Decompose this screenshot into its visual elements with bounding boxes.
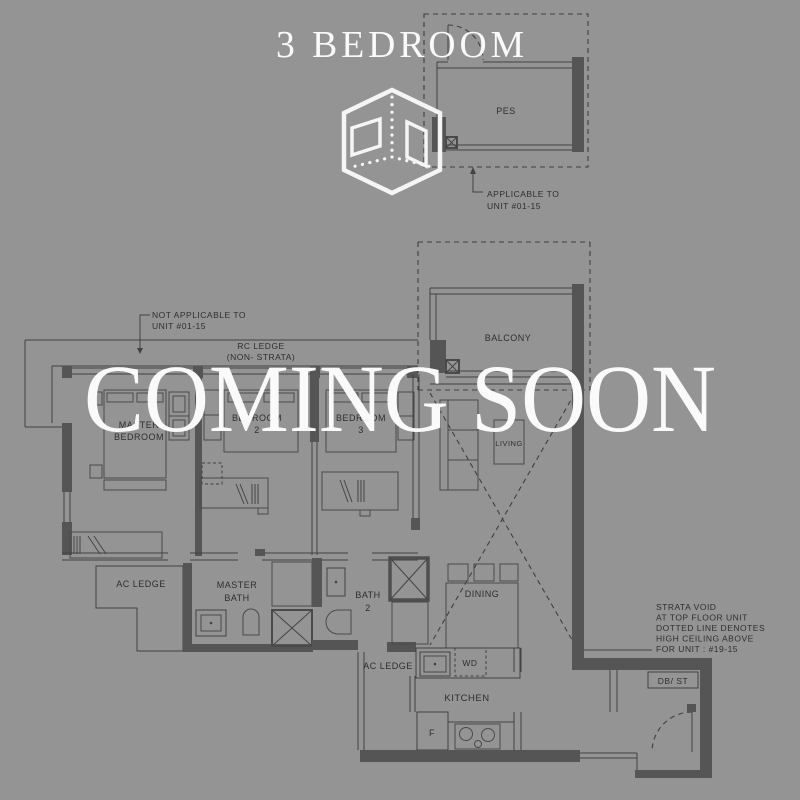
master-bath-label-line2: BATH	[224, 593, 249, 603]
strata-void-line5: FOR UNIT : #19-15	[656, 644, 738, 654]
bath-2: BATH 2	[312, 558, 428, 652]
pes-note-line2: UNIT #01-15	[487, 201, 541, 211]
balcony-label: BALCONY	[485, 333, 532, 343]
kitchen: AC LEDGE WD KITCHEN F	[358, 648, 580, 762]
floor-plan-canvas: PES APPLICABLE TO UNIT #01-15 RC LEDGE (…	[0, 0, 800, 800]
floorplan-page: PES APPLICABLE TO UNIT #01-15 RC LEDGE (…	[0, 0, 800, 800]
master-bath-label-line1: MASTER	[217, 580, 258, 590]
pes-right-wall	[572, 57, 584, 152]
strata-void-note: STRATA VOID AT TOP FLOOR UNIT DOTTED LIN…	[584, 602, 765, 654]
not-applicable-line2: UNIT #01-15	[152, 321, 206, 331]
strata-void-line4: HIGH CEILING ABOVE	[656, 634, 754, 644]
ac-ledge-left-label: AC LEDGE	[116, 579, 166, 589]
isometric-room-icon	[344, 90, 440, 193]
pes-note-line1: APPLICABLE TO	[487, 189, 559, 199]
fridge-label: F	[429, 728, 435, 738]
dining-area: DINING	[446, 564, 518, 648]
pes-room-label: PES	[496, 106, 516, 116]
entry-area: DB/ ST	[572, 658, 712, 778]
db-st-label: DB/ ST	[658, 676, 688, 686]
strata-void-line3: DOTTED LINE DENOTES	[656, 623, 765, 633]
bath2-label-line2: 2	[365, 603, 371, 613]
page-title: 3 BEDROOM	[276, 24, 528, 66]
strata-void-line1: STRATA VOID	[656, 602, 716, 612]
kitchen-label: KITCHEN	[444, 693, 489, 704]
strata-void-line2: AT TOP FLOOR UNIT	[656, 613, 748, 623]
washer-dryer-label: WD	[462, 658, 477, 668]
coming-soon-overlay: COMING SOON	[84, 345, 716, 452]
not-applicable-line1: NOT APPLICABLE TO	[152, 310, 246, 320]
bath2-label-line1: BATH	[355, 590, 380, 600]
main-floor-plan: RC LEDGE (NON- STRATA) NOT APPLICABLE TO…	[25, 242, 765, 778]
master-bath: MASTER BATH	[183, 558, 322, 652]
dining-label: DINING	[465, 589, 500, 599]
ac-ledge-kitchen-label: AC LEDGE	[363, 661, 413, 671]
ac-ledge-left: AC LEDGE	[96, 566, 183, 651]
